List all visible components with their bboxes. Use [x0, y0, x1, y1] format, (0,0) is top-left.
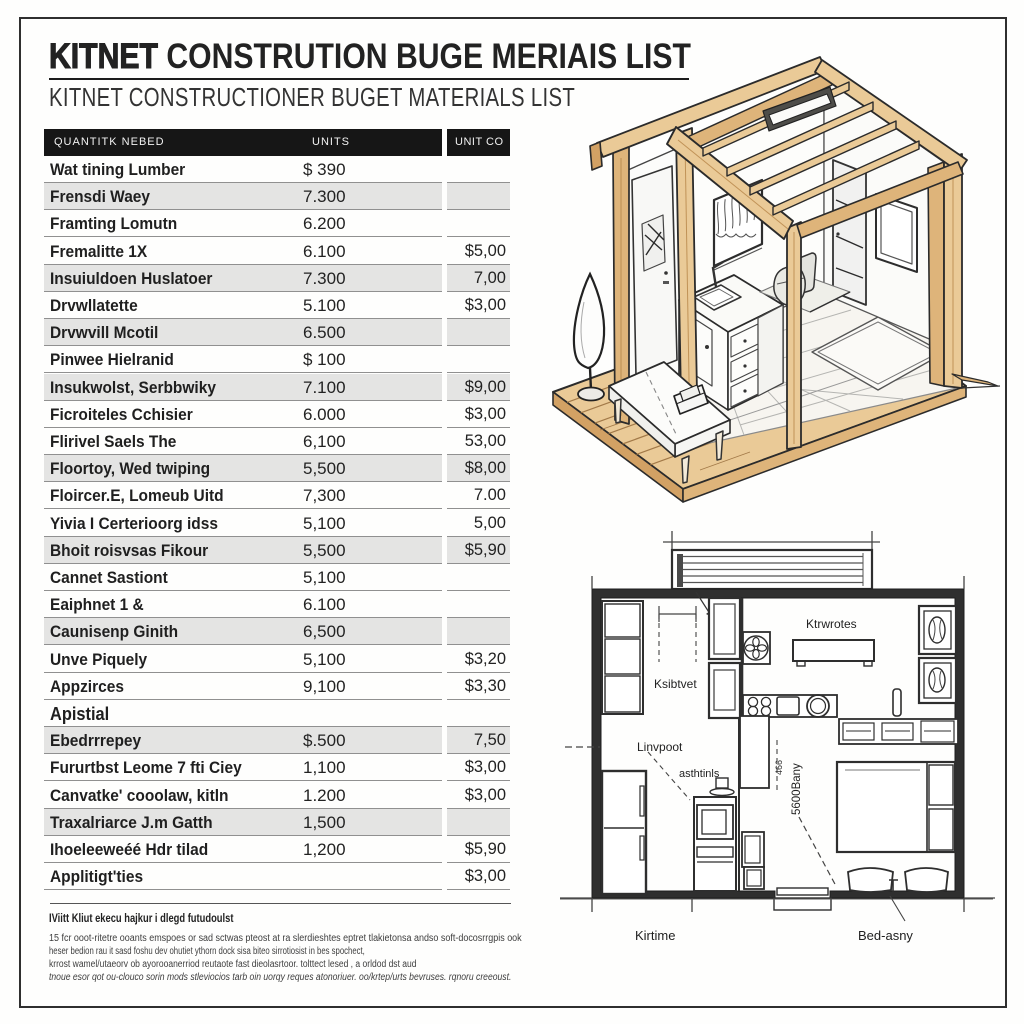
svg-text:Ksibtvet: Ksibtvet: [654, 677, 697, 691]
svg-text:466: 466: [774, 760, 784, 775]
svg-text:Kirtime: Kirtime: [635, 928, 675, 943]
svg-text:5600Bany: 5600Bany: [791, 763, 803, 815]
svg-text:Bed-asny: Bed-asny: [858, 928, 913, 943]
svg-text:asthtinls: asthtinls: [679, 768, 720, 780]
svg-text:Linvpoot: Linvpoot: [637, 740, 683, 754]
svg-text:Ktrwrotes: Ktrwrotes: [806, 617, 857, 631]
